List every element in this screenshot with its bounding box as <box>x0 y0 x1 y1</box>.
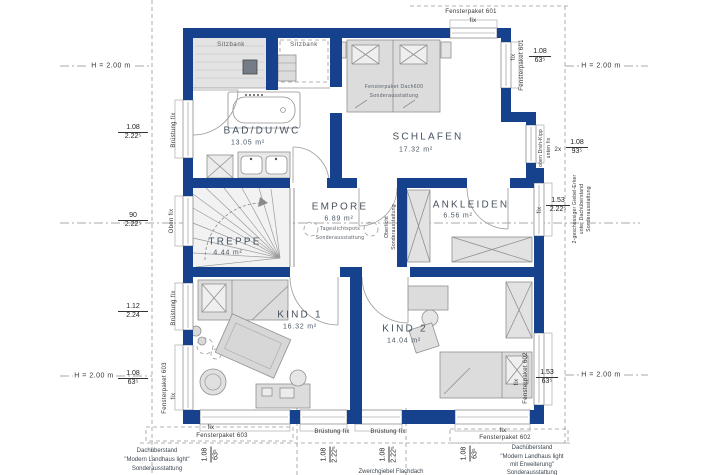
kind1-furniture <box>191 280 310 408</box>
schlafen-bed <box>336 40 451 112</box>
dim-left2: 902.22⁵ <box>116 212 150 229</box>
floor-plan-page: BAD/DU/WC 13.05 m² SCHLAFEN 17.32 m² EMP… <box>0 0 715 475</box>
dim-right3: 1.532.22⁵ <box>544 197 572 214</box>
staircase <box>193 188 294 267</box>
dim-bottom1: 1.0863⁵ <box>202 444 221 466</box>
dim-right4: 1.5363⁵ <box>534 369 560 386</box>
dim-bottom3: 1.082.22⁵ <box>380 444 399 466</box>
dim-left3: 1.122.24 <box>116 303 150 320</box>
dim-left1: 1.082.22⁵ <box>116 124 150 141</box>
dim-right2: 1.0893⁵ <box>564 139 590 156</box>
dim-left4: 1.0863⁵ <box>116 370 150 387</box>
dim-bottom2: 1.082.22⁵ <box>321 444 340 466</box>
dim-right1: 1.0863⁵ <box>527 48 553 65</box>
dim-bottom4: 1.0863⁵ <box>461 443 480 465</box>
